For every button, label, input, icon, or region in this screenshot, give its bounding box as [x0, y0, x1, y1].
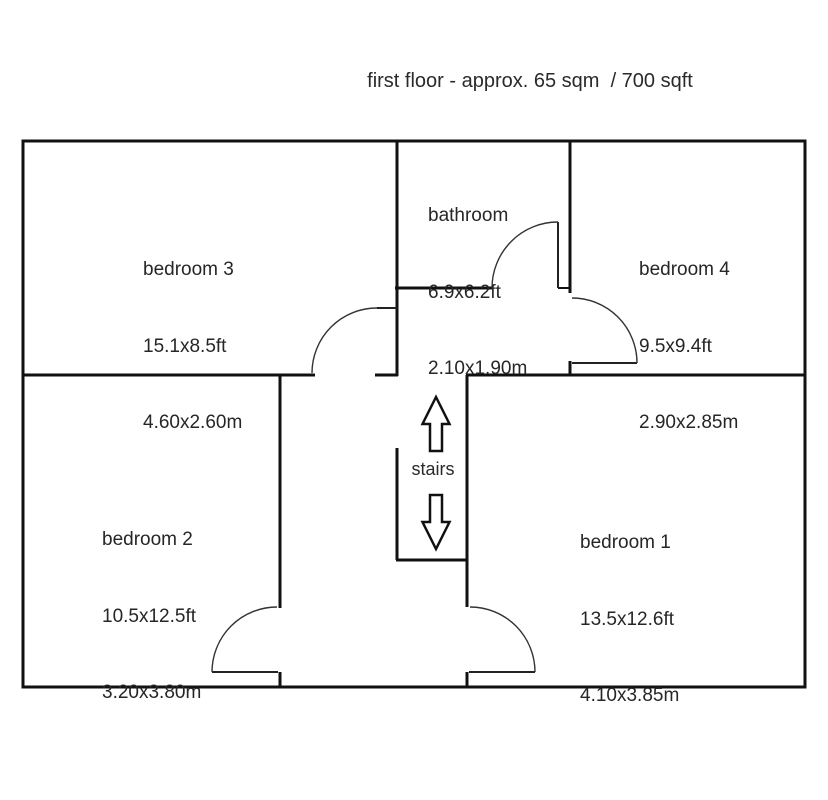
room-label-bedroom-4: bedroom 4 9.5x9.4ft 2.90x2.85m [639, 206, 738, 487]
room-dims-m: 2.10x1.90m [428, 356, 527, 382]
bedroom2-door-arc [212, 607, 277, 672]
stairs-down-arrow-icon [423, 495, 450, 549]
room-label-bedroom-3: bedroom 3 15.1x8.5ft 4.60x2.60m [143, 206, 242, 487]
room-dims-m: 3.20x3.80m [102, 680, 201, 706]
room-name: bedroom 3 [143, 257, 242, 283]
room-dims-ft: 6.9x6.2ft [428, 280, 527, 306]
room-name: bedroom 2 [102, 527, 201, 553]
room-label-bathroom: bathroom 6.9x6.2ft 2.10x1.90m [428, 152, 527, 433]
room-dims-m: 2.90x2.85m [639, 410, 738, 436]
room-name: bathroom [428, 203, 527, 229]
room-dims-ft: 9.5x9.4ft [639, 334, 738, 360]
stairs-label: stairs [411, 459, 454, 480]
bedroom4-door-arc [572, 298, 637, 363]
floor-plan: first floor - approx. 65 sqm / 700 sqft [0, 0, 828, 800]
room-dims-ft: 10.5x12.5ft [102, 604, 201, 630]
room-dims-ft: 15.1x8.5ft [143, 334, 242, 360]
room-label-bedroom-2: bedroom 2 10.5x12.5ft 3.20x3.80m [102, 476, 201, 757]
bedroom1-door-arc [470, 607, 535, 672]
room-name: bedroom 1 [580, 530, 679, 556]
room-name: bedroom 4 [639, 257, 738, 283]
room-dims-m: 4.60x2.60m [143, 410, 242, 436]
room-dims-ft: 13.5x12.6ft [580, 607, 679, 633]
room-dims-m: 4.10x3.85m [580, 683, 679, 709]
room-label-bedroom-1: bedroom 1 13.5x12.6ft 4.10x3.85m [580, 479, 679, 760]
bedroom3-door-arc [312, 308, 377, 373]
